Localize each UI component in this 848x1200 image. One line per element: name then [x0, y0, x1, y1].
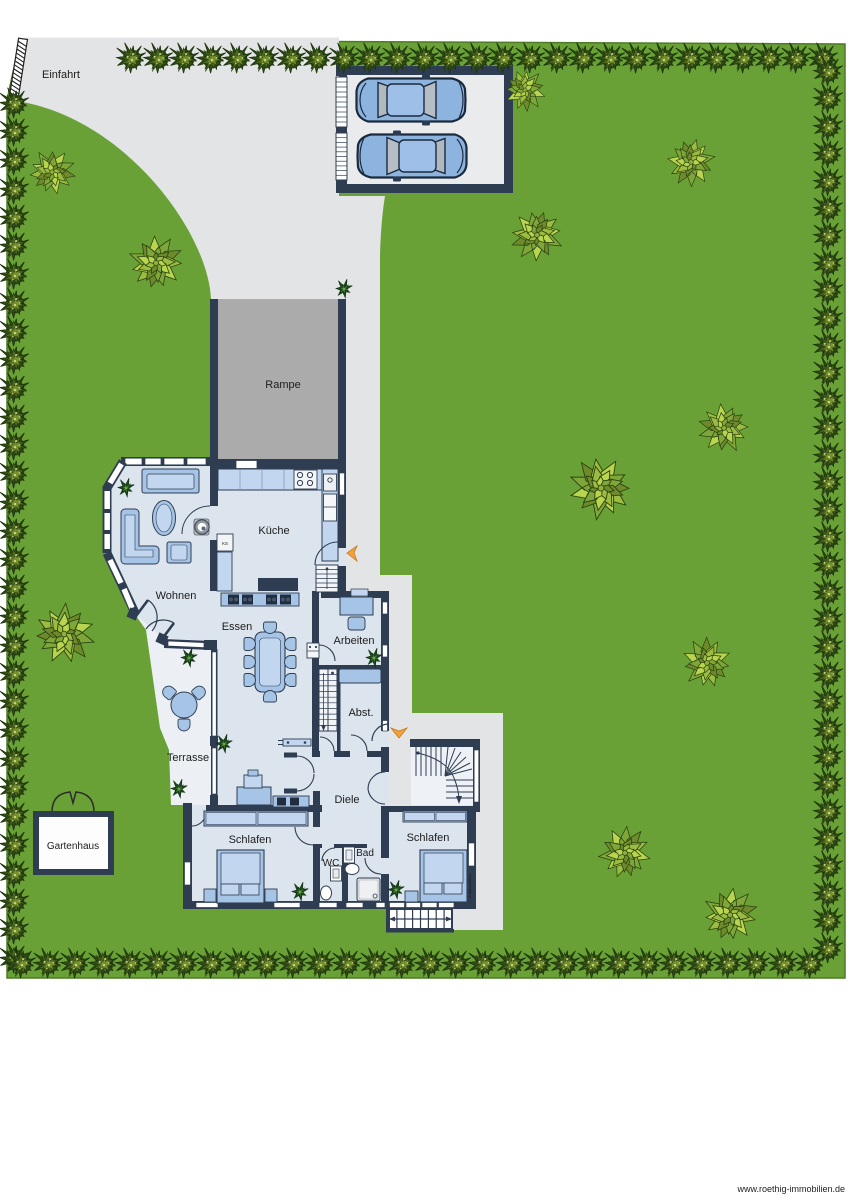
- svg-text:Einfahrt: Einfahrt: [42, 69, 80, 81]
- svg-text:Essen: Essen: [222, 621, 253, 633]
- svg-text:Diele: Diele: [334, 794, 359, 806]
- svg-text:© immoOffice: © immoOffice: [467, 873, 472, 898]
- svg-text:Schlafen: Schlafen: [229, 834, 272, 846]
- svg-text:Gartenhaus: Gartenhaus: [47, 841, 99, 852]
- svg-text:Schlafen: Schlafen: [407, 832, 450, 844]
- svg-text:Terrasse: Terrasse: [167, 752, 209, 764]
- svg-text:Küche: Küche: [258, 525, 289, 537]
- svg-text:WC: WC: [323, 858, 340, 869]
- svg-text:www.roethig-immobilien.de: www.roethig-immobilien.de: [736, 1184, 845, 1194]
- svg-text:Arbeiten: Arbeiten: [334, 635, 375, 647]
- svg-text:Abst.: Abst.: [348, 707, 373, 719]
- svg-text:Rampe: Rampe: [265, 379, 300, 391]
- svg-text:KS: KS: [222, 541, 228, 546]
- svg-text:Bad: Bad: [356, 848, 374, 859]
- svg-text:Wohnen: Wohnen: [156, 590, 197, 602]
